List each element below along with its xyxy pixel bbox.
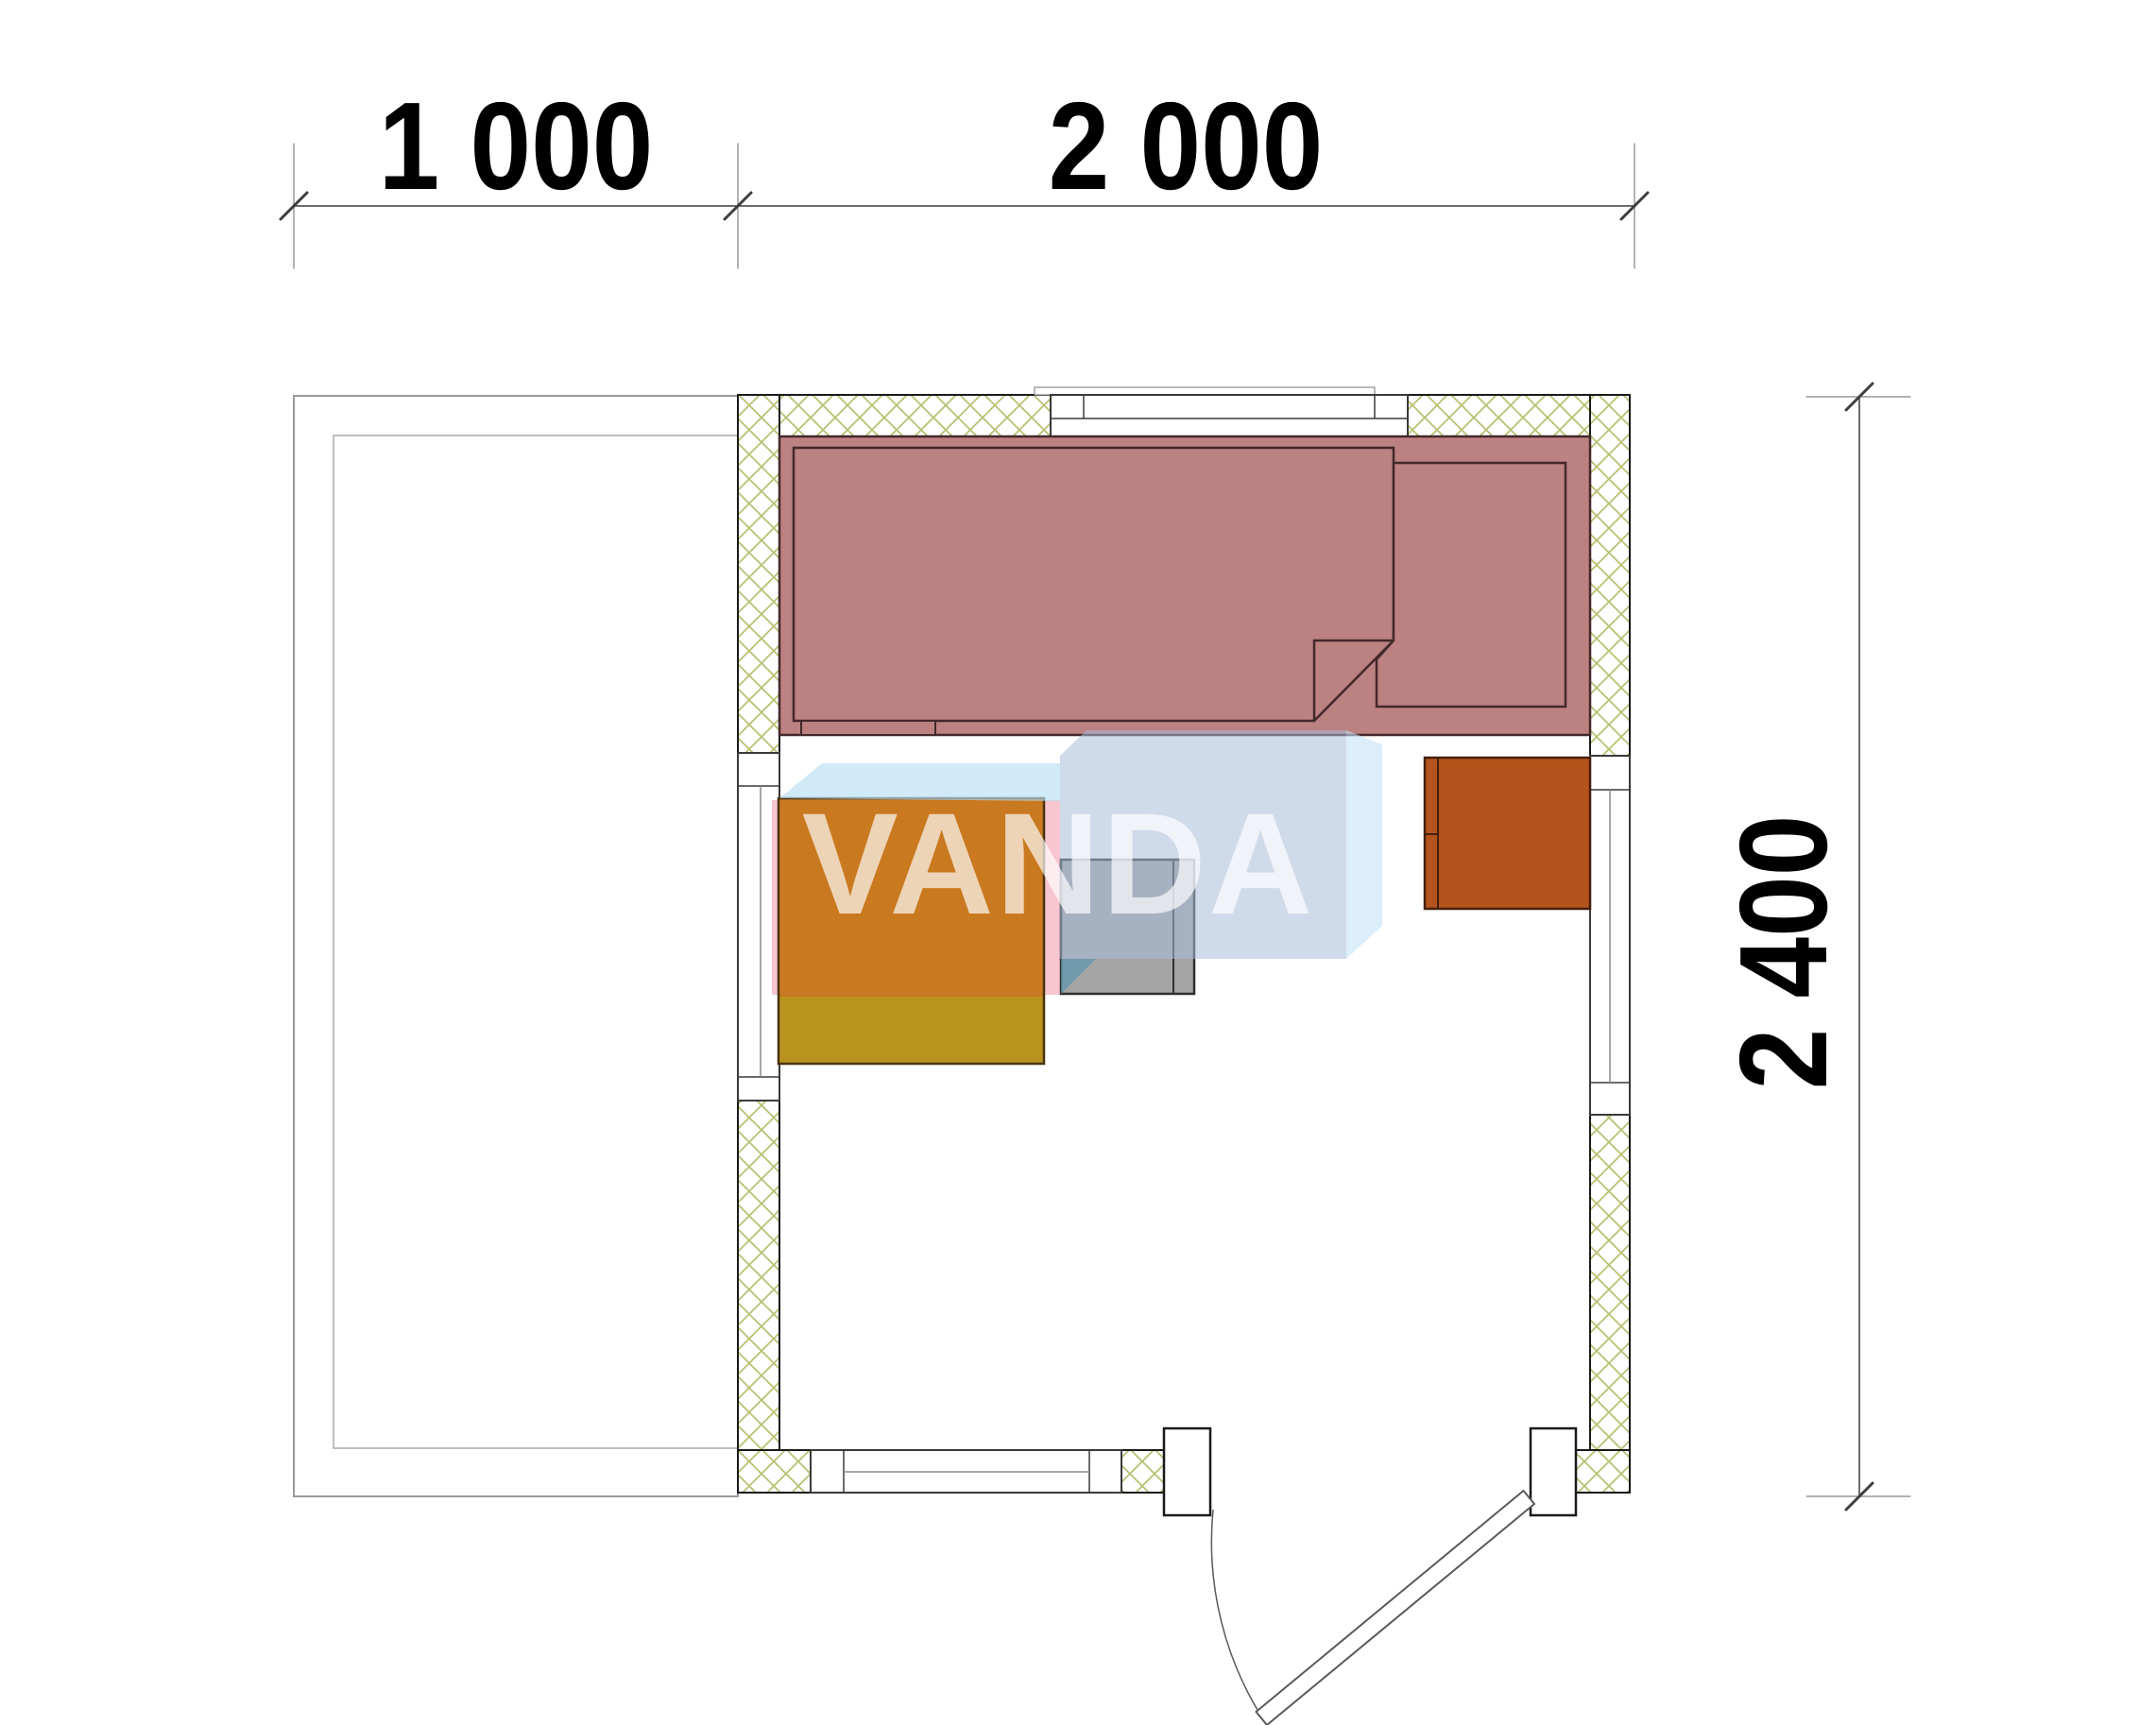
bench-upper-left	[794, 448, 1394, 721]
dimension-label-1000: 1 000	[379, 77, 654, 216]
cabinet-unit	[1425, 758, 1590, 909]
wall-bottom-middle-segment	[1121, 1450, 1164, 1493]
wall-left-upper-segment	[738, 395, 779, 753]
wall-right-lower-segment	[1590, 1115, 1630, 1493]
window-bottom	[811, 1450, 1121, 1493]
dimension-label-2400: 2 400	[1714, 815, 1854, 1090]
wall-top-left-segment	[738, 395, 1051, 436]
wall-left-lower-segment	[738, 1101, 779, 1450]
bench-step	[801, 721, 935, 735]
floor-plan: 1 000 2 000 2 400	[0, 0, 2156, 1725]
window-top-frame	[1051, 395, 1408, 436]
sauna-benches	[779, 436, 1590, 735]
floor-plan-canvas: 1 000 2 000 2 400	[0, 0, 2156, 1725]
wall-right-upper-segment	[1590, 395, 1630, 756]
window-top-sill	[1035, 387, 1375, 395]
bench-right	[1377, 463, 1566, 707]
wall-bottom-left-corner	[738, 1450, 811, 1493]
wall-bottom-right-corner	[1576, 1450, 1630, 1493]
door-jamb-left	[1164, 1428, 1210, 1515]
cabinet-body	[1425, 758, 1590, 909]
dimension-label-2000: 2 000	[1049, 77, 1324, 216]
door-jamb-right	[1531, 1428, 1576, 1515]
heater-base	[779, 997, 1044, 1064]
watermark-right-face	[1346, 730, 1382, 959]
window-right	[1590, 756, 1630, 1115]
window-top	[1035, 387, 1408, 436]
watermark-text: VANDA	[802, 783, 1315, 945]
